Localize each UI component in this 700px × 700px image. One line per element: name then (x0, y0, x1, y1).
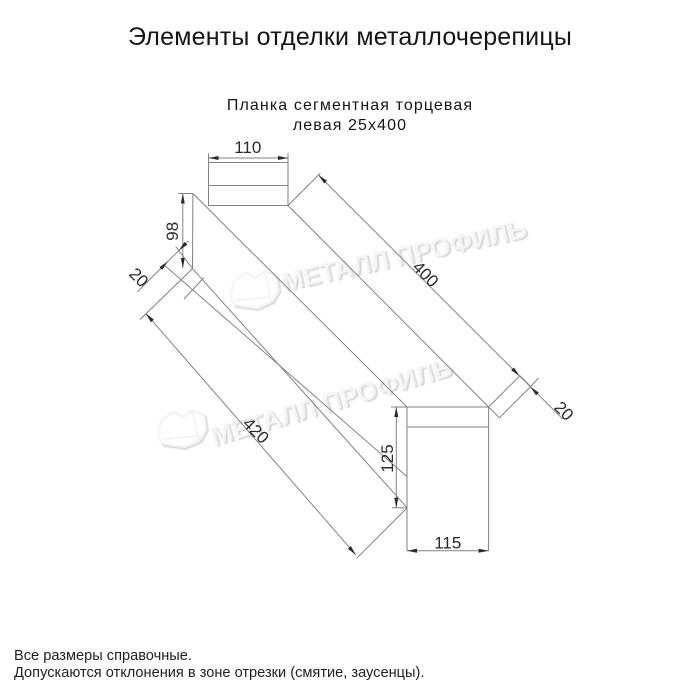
svg-text:125: 125 (378, 444, 397, 472)
svg-text:98: 98 (163, 222, 182, 241)
svg-text:МЕТАЛЛ ПРОФИЛЬ: МЕТАЛЛ ПРОФИЛЬ (207, 352, 455, 452)
svg-text:115: 115 (434, 534, 461, 553)
svg-text:110: 110 (234, 138, 261, 157)
svg-text:20: 20 (550, 398, 577, 425)
svg-text:МЕТАЛЛ ПРОФИЛЬ: МЕТАЛЛ ПРОФИЛЬ (279, 213, 530, 296)
svg-text:20: 20 (125, 264, 152, 291)
